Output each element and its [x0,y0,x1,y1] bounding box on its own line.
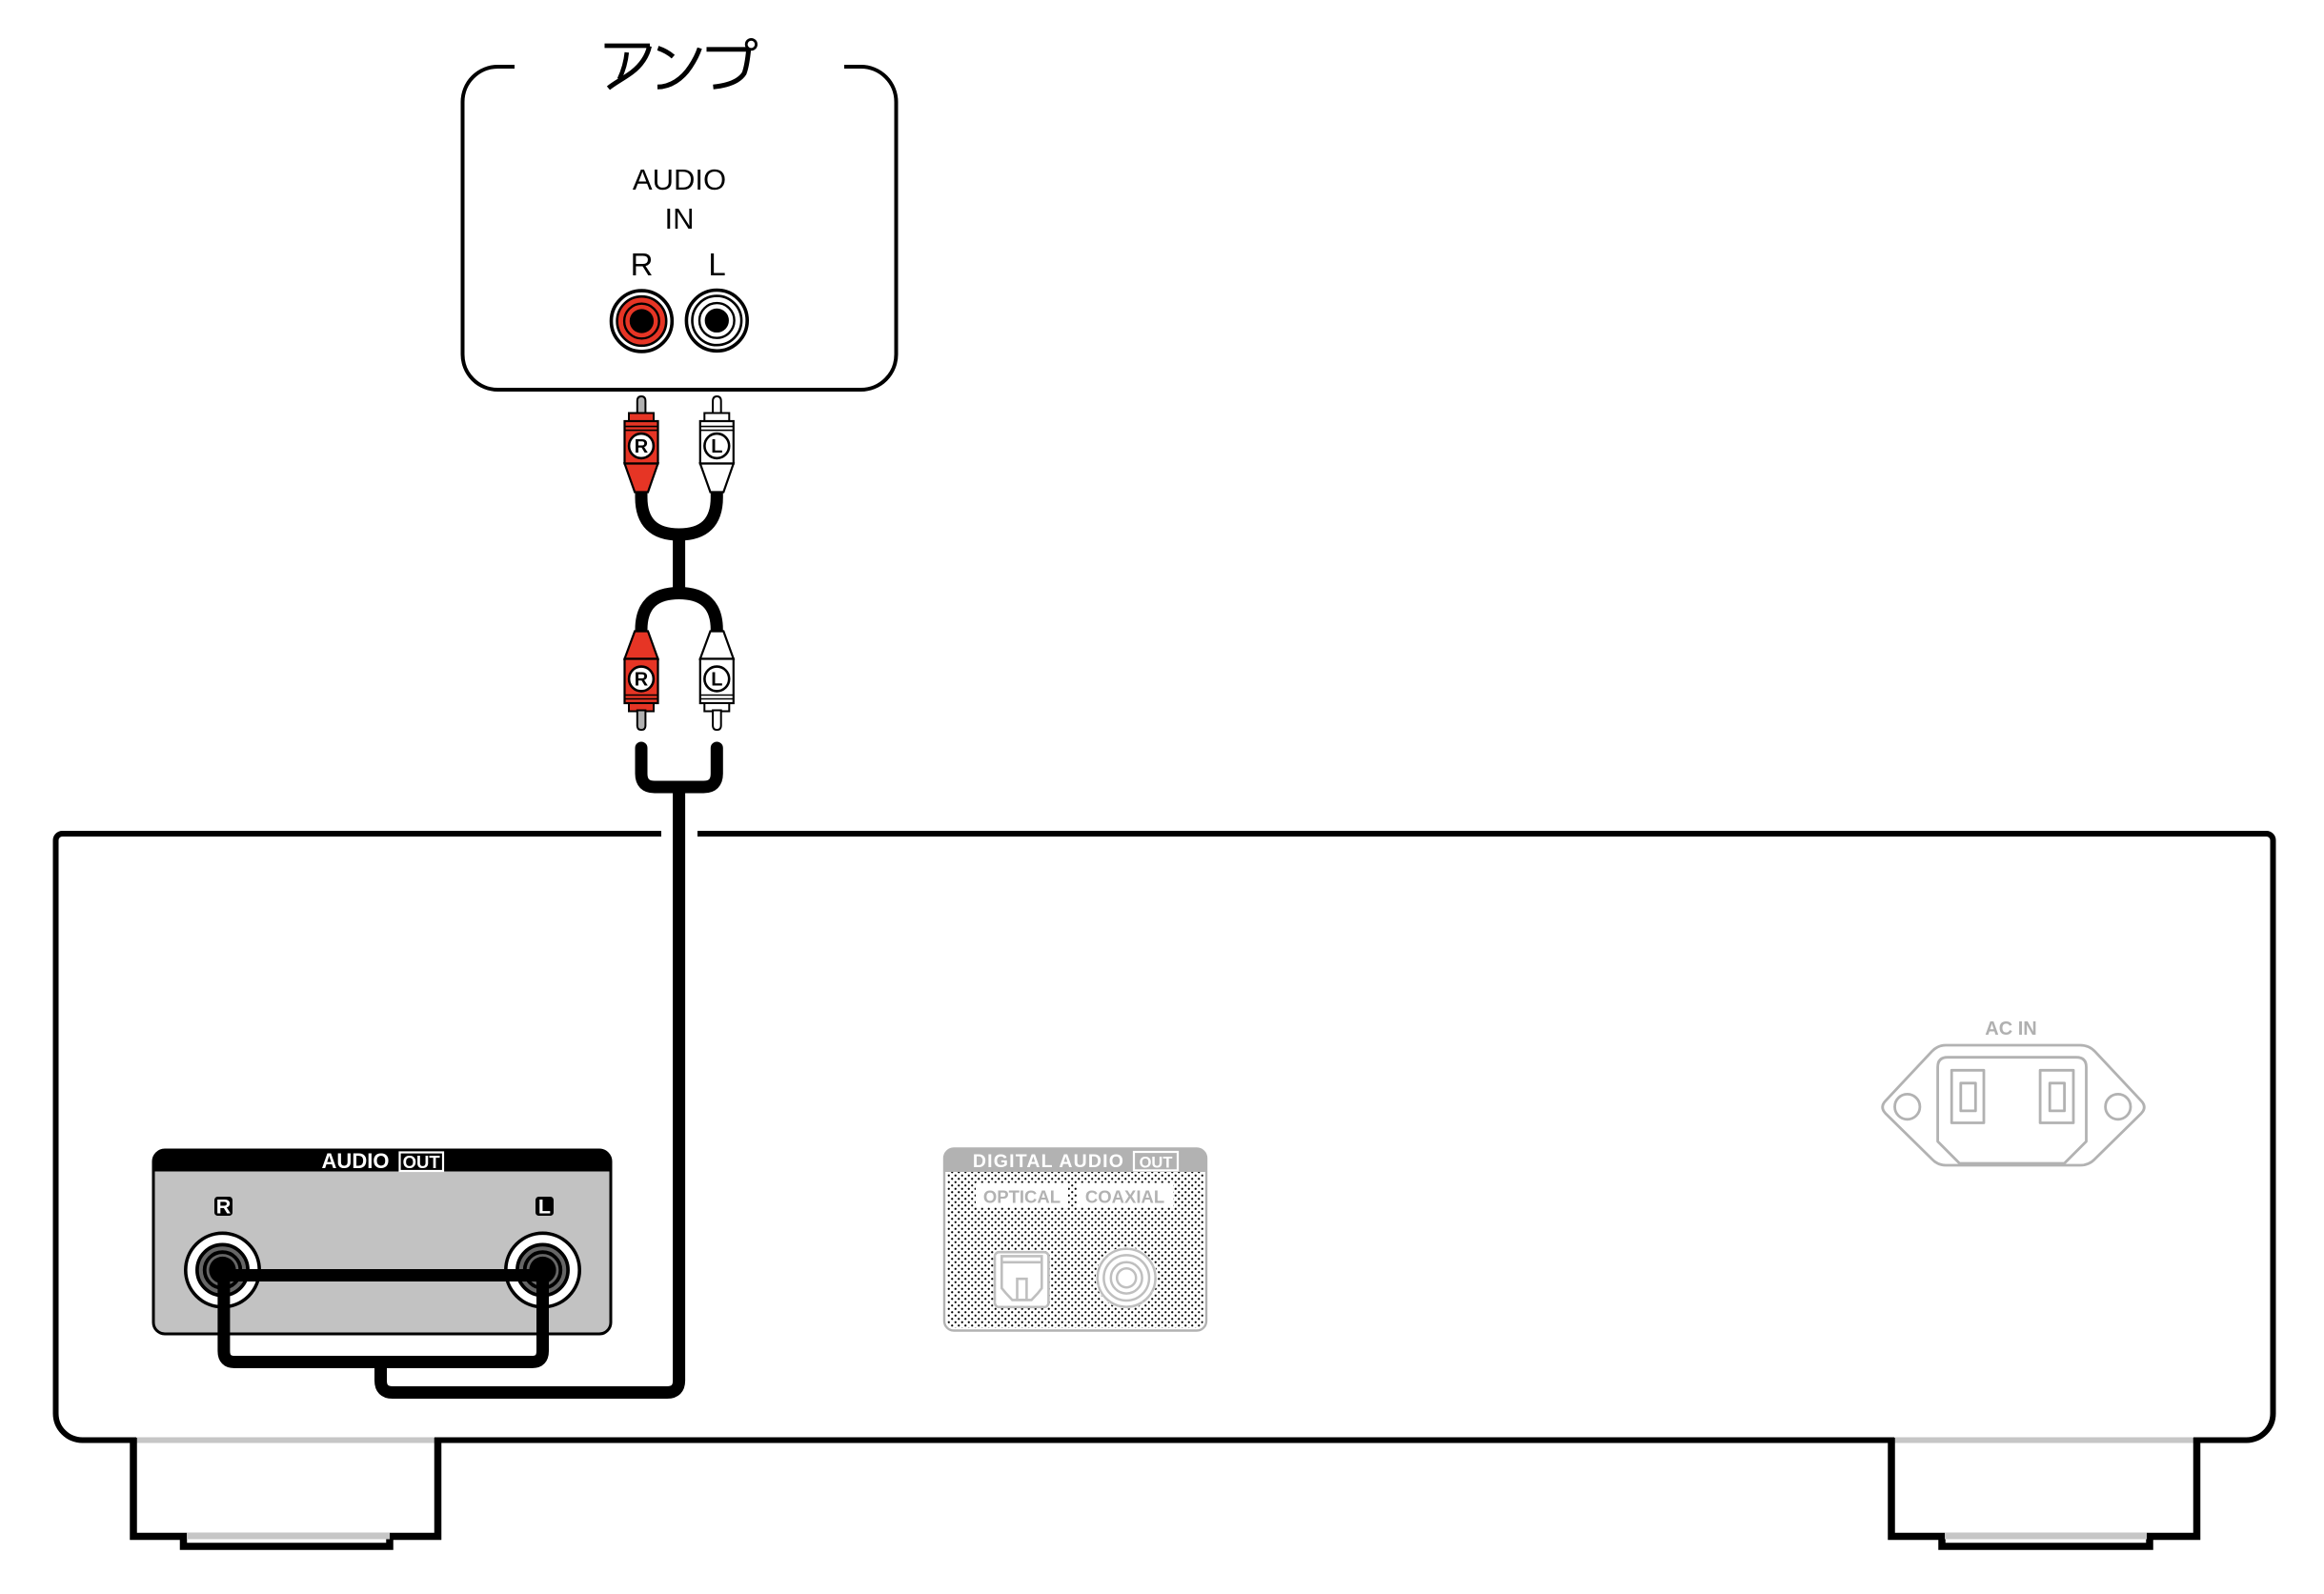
svg-text:L: L [538,1195,551,1218]
svg-text:COAXIAL: COAXIAL [1085,1187,1164,1207]
svg-text:DIGITAL AUDIO: DIGITAL AUDIO [973,1151,1124,1172]
svg-text:L: L [711,669,722,690]
svg-text:L: L [711,436,722,457]
svg-text:OUT: OUT [403,1152,441,1172]
svg-text:R: R [631,247,654,282]
svg-text:L: L [708,247,725,282]
svg-text:AUDIO: AUDIO [322,1149,390,1173]
svg-text:OPTICAL: OPTICAL [983,1187,1061,1207]
svg-text:AUDIO: AUDIO [633,163,726,196]
svg-text:OUT: OUT [1140,1154,1173,1171]
svg-text:R: R [635,436,649,457]
svg-text:IN: IN [665,202,695,235]
svg-text:R: R [216,1195,232,1218]
svg-text:AC IN: AC IN [1985,1019,2036,1039]
svg-text:R: R [635,669,649,690]
